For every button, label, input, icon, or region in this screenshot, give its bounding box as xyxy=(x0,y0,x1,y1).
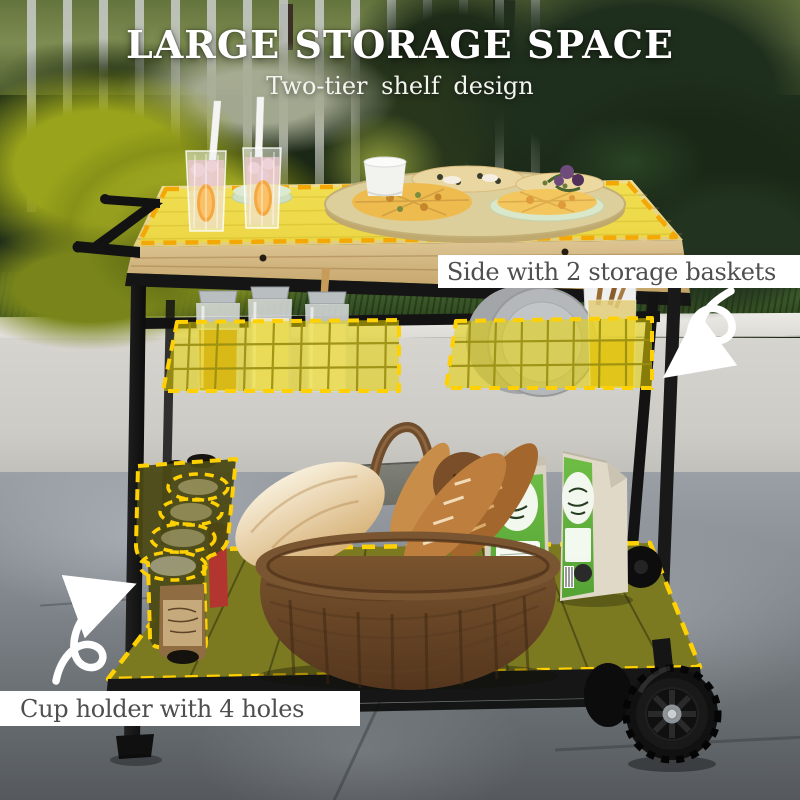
basket-highlight-right xyxy=(446,318,652,388)
callout-storage-baskets-label: Side with 2 storage baskets xyxy=(447,258,776,286)
hanging-bottle xyxy=(159,584,206,664)
basket-highlight-left xyxy=(163,320,399,391)
page-subtitle: Two-tier shelf design xyxy=(0,72,800,100)
drink-glass xyxy=(186,101,226,231)
tea-package xyxy=(557,452,633,607)
serving-cart-scene xyxy=(0,0,800,800)
callout-cup-holder: Cup holder with 4 holes xyxy=(0,691,360,726)
product-marketing-image: LARGE STORAGE SPACE Two-tier shelf desig… xyxy=(0,0,800,800)
page-title: LARGE STORAGE SPACE xyxy=(0,22,800,67)
drink-glass xyxy=(243,97,281,228)
swirl-arrow-cupholder-icon xyxy=(56,590,119,681)
callout-storage-baskets: Side with 2 storage baskets xyxy=(438,255,800,288)
white-cup xyxy=(364,157,406,196)
callout-cup-holder-label: Cup holder with 4 holes xyxy=(20,695,304,723)
